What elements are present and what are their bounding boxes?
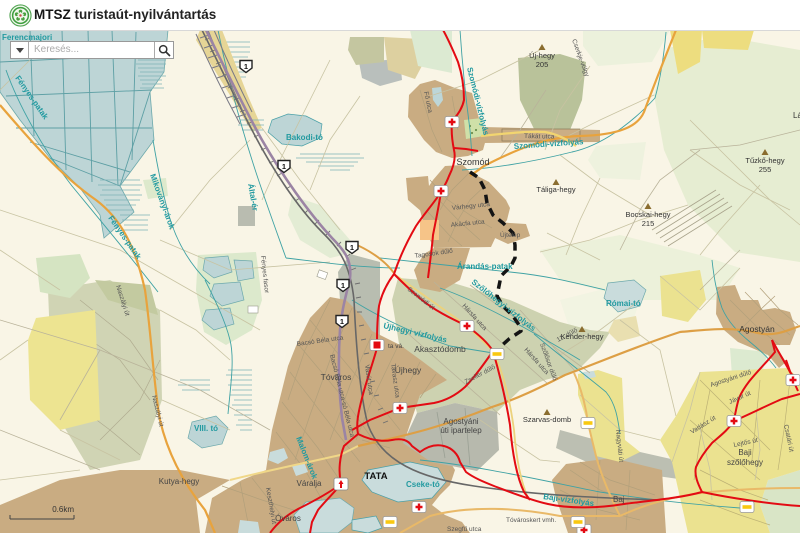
- svg-text:Táliga-hegy: Táliga-hegy: [536, 185, 575, 194]
- svg-text:szőlőhegy: szőlőhegy: [727, 458, 763, 467]
- svg-text:Agostyán: Agostyán: [739, 324, 775, 334]
- svg-text:0.6km: 0.6km: [52, 505, 74, 514]
- svg-text:Új-hegy: Új-hegy: [529, 51, 555, 60]
- svg-text:Agostyáni: Agostyáni: [443, 417, 478, 426]
- svg-text:Újtelep: Újtelep: [500, 230, 521, 239]
- svg-text:215: 215: [642, 219, 655, 228]
- svg-text:Szegfű utca: Szegfű utca: [447, 526, 482, 533]
- svg-text:Tákát utca: Tákát utca: [524, 133, 555, 141]
- svg-text:Baj: Baj: [613, 495, 625, 504]
- svg-text:Lábas: Lábas: [793, 111, 800, 120]
- svg-text:Cseke-tó: Cseke-tó: [406, 480, 440, 489]
- svg-text:Tűzkő-hegy: Tűzkő-hegy: [745, 156, 784, 165]
- svg-text:205: 205: [536, 60, 549, 69]
- svg-text:Óváros: Óváros: [275, 514, 301, 523]
- svg-text:Baji: Baji: [738, 448, 752, 457]
- svg-text:Kutya-hegy: Kutya-hegy: [159, 477, 199, 486]
- svg-text:úti ipartelep: úti ipartelep: [440, 426, 482, 435]
- svg-text:Újhegy: Újhegy: [395, 365, 422, 375]
- svg-text:ta vá.: ta vá.: [388, 343, 404, 350]
- svg-text:Szarvas-domb: Szarvas-domb: [523, 415, 571, 424]
- svg-text:Akasztódomb: Akasztódomb: [414, 344, 466, 354]
- svg-text:Tóvároskert vmh.: Tóvároskert vmh.: [506, 517, 556, 524]
- svg-text:Szomód: Szomód: [456, 157, 489, 167]
- svg-text:Bocskai-hegy: Bocskai-hegy: [625, 210, 670, 219]
- svg-text:TATA: TATA: [364, 471, 387, 482]
- svg-text:Római-tó: Római-tó: [606, 299, 641, 308]
- svg-text:Árandás-patak: Árandás-patak: [457, 262, 513, 271]
- svg-text:Bakodi-tó: Bakodi-tó: [286, 133, 323, 142]
- svg-text:255: 255: [759, 165, 772, 174]
- svg-text:Váralja: Váralja: [297, 479, 322, 488]
- svg-text:VIII. tó: VIII. tó: [194, 424, 218, 433]
